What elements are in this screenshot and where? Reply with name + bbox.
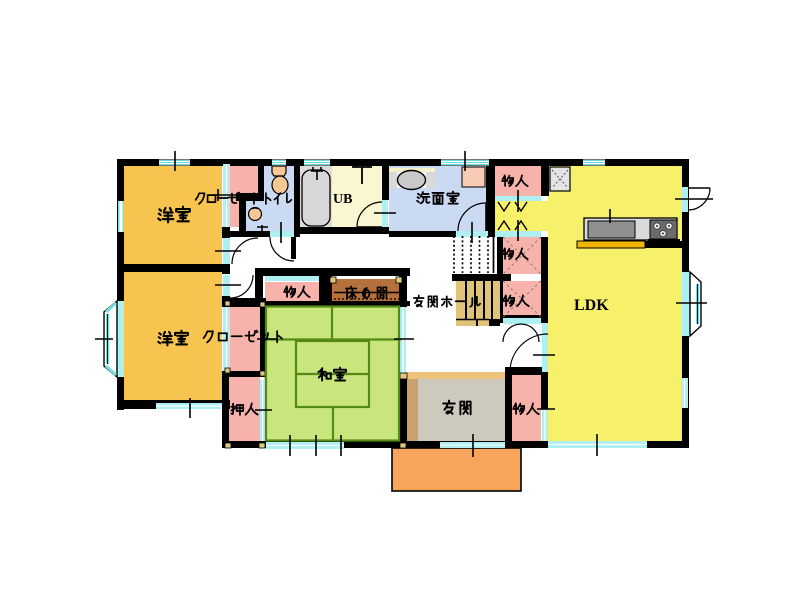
svg-text:LDK: LDK: [574, 297, 609, 314]
svg-text:UB: UB: [333, 192, 352, 207]
